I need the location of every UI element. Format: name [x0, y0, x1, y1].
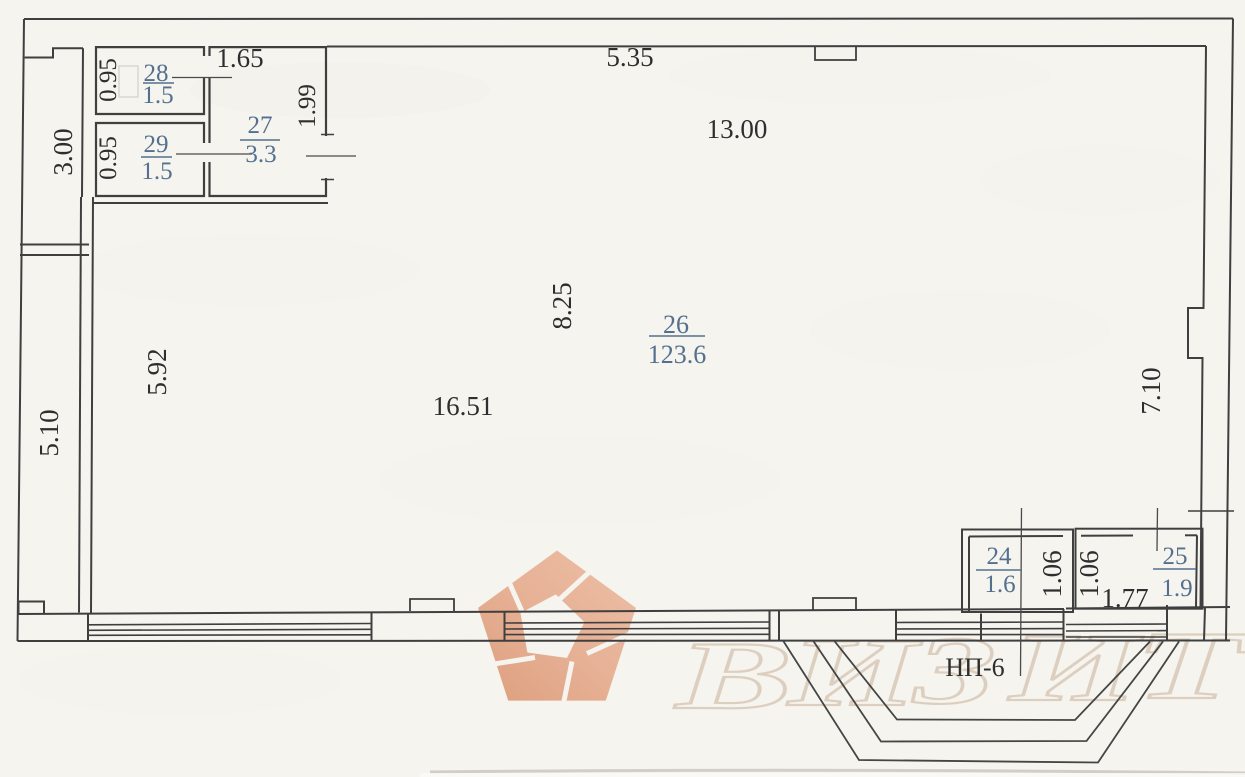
- svg-text:НП-6: НП-6: [945, 653, 1004, 682]
- svg-text:1.65: 1.65: [216, 43, 263, 73]
- svg-text:5.35: 5.35: [606, 42, 653, 72]
- svg-text:25: 25: [1163, 543, 1188, 570]
- svg-text:7.10: 7.10: [1136, 367, 1166, 414]
- svg-text:16.51: 16.51: [433, 391, 494, 421]
- svg-text:1.5: 1.5: [142, 82, 173, 109]
- svg-text:123.6: 123.6: [648, 340, 707, 369]
- svg-text:13.00: 13.00: [707, 114, 768, 144]
- svg-text:3.3: 3.3: [245, 141, 276, 168]
- svg-text:0.95: 0.95: [95, 58, 122, 102]
- svg-text:1.5: 1.5: [141, 158, 172, 185]
- svg-text:1.06: 1.06: [1037, 550, 1067, 597]
- svg-text:В: В: [674, 621, 793, 729]
- svg-text:Т: Т: [1134, 612, 1245, 719]
- svg-text:И: И: [1008, 613, 1144, 721]
- svg-text:27: 27: [248, 112, 273, 139]
- svg-text:0.95: 0.95: [95, 136, 122, 180]
- svg-text:8.25: 8.25: [547, 282, 577, 329]
- svg-text:1.77: 1.77: [1101, 583, 1148, 613]
- svg-text:1.06: 1.06: [1074, 550, 1104, 597]
- svg-text:1.9: 1.9: [1161, 575, 1192, 602]
- svg-text:24: 24: [987, 543, 1013, 570]
- svg-text:5.10: 5.10: [34, 409, 64, 456]
- svg-text:26: 26: [663, 310, 689, 339]
- svg-text:1.99: 1.99: [294, 84, 321, 128]
- svg-text:5.92: 5.92: [142, 348, 172, 395]
- svg-text:1.6: 1.6: [984, 571, 1015, 598]
- svg-text:3.00: 3.00: [48, 128, 78, 175]
- svg-text:29: 29: [144, 131, 169, 158]
